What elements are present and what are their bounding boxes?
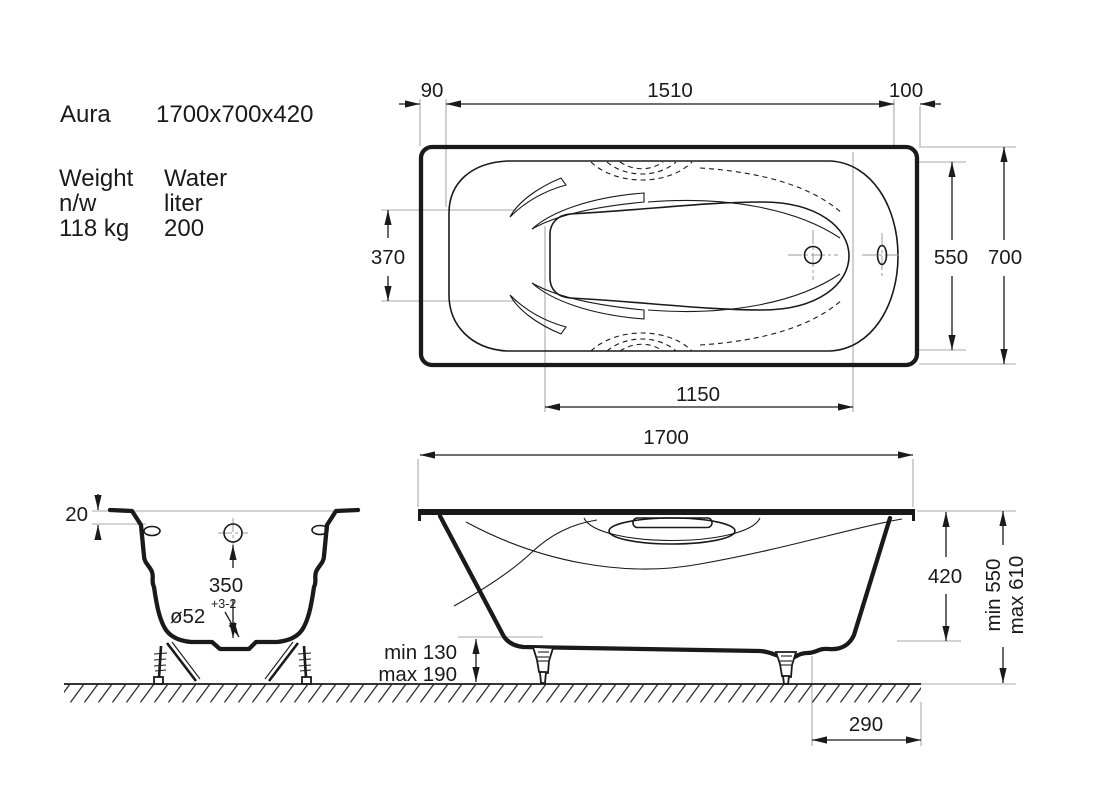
dim-inner-width: 550	[934, 246, 968, 269]
ground-hatching	[64, 685, 921, 703]
dim-drain-diameter: ø52	[170, 605, 205, 628]
dim-leg-min: min 130	[384, 641, 457, 664]
handle-hole-left	[144, 527, 160, 536]
tub-outer-rim	[421, 147, 917, 365]
weight-value: 118 kg	[59, 215, 129, 242]
dim-shell-height: 420	[928, 565, 962, 588]
info-block: Aura 1700x700x420 Weight n/w 118 kg Wate…	[59, 101, 313, 242]
product-dimensions: 1700x700x420	[156, 101, 313, 128]
overflow-symbol	[862, 233, 902, 277]
side-view-shell	[418, 512, 915, 658]
dim-rim-length: 1510	[647, 79, 693, 102]
dim-leg-max: max 190	[378, 663, 457, 686]
ground	[64, 684, 921, 703]
grip-contours	[510, 178, 840, 334]
drawing-canvas: Aura 1700x700x420 Weight n/w 118 kg Wate…	[0, 0, 1095, 800]
top-view: 90 1510 100 370 550 700 1150	[371, 79, 1022, 412]
weight-label: Weight	[59, 165, 134, 192]
dim-drain-offset: 290	[849, 713, 883, 736]
side-view-extension-lines	[418, 459, 1016, 746]
dim-overflow-height: 350	[209, 574, 243, 597]
end-view: 20 350 ø52 +3-2	[65, 494, 358, 684]
water-label: Water	[164, 165, 227, 192]
top-view-dimensions: 90 1510 100 370 550 700 1150	[371, 79, 1022, 407]
tub-inner-rim	[449, 161, 898, 351]
dim-drain-tolerance: +3-2	[211, 597, 236, 611]
water-unit-label: liter	[164, 190, 203, 217]
dim-seat-width: 370	[371, 246, 405, 269]
dim-height-min: min 550	[982, 559, 1005, 632]
dim-offset-left: 90	[421, 79, 444, 102]
dim-height-max: max 610	[1005, 556, 1028, 635]
dim-well-length: 1150	[676, 383, 720, 406]
bathtub-technical-drawing: Aura 1700x700x420 Weight n/w 118 kg Wate…	[0, 0, 1095, 800]
dim-overall-width: 700	[988, 246, 1022, 269]
water-value: 200	[164, 215, 204, 242]
dim-overall-length: 1700	[643, 426, 689, 449]
drain-symbol	[788, 230, 838, 280]
weight-unit-label: n/w	[59, 190, 97, 217]
overflow-center-symbol	[218, 518, 248, 548]
product-name: Aura	[60, 101, 111, 128]
dim-offset-right: 100	[889, 79, 923, 102]
dim-rim-thickness: 20	[65, 503, 88, 526]
